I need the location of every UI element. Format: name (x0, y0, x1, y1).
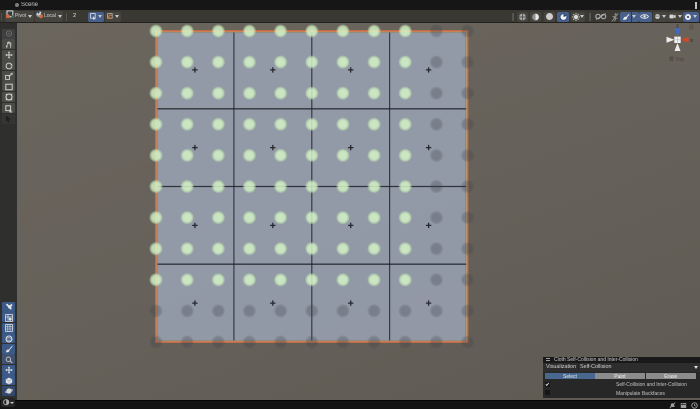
svg-text:x: x (690, 38, 694, 44)
svg-text:Top: Top (675, 57, 684, 63)
